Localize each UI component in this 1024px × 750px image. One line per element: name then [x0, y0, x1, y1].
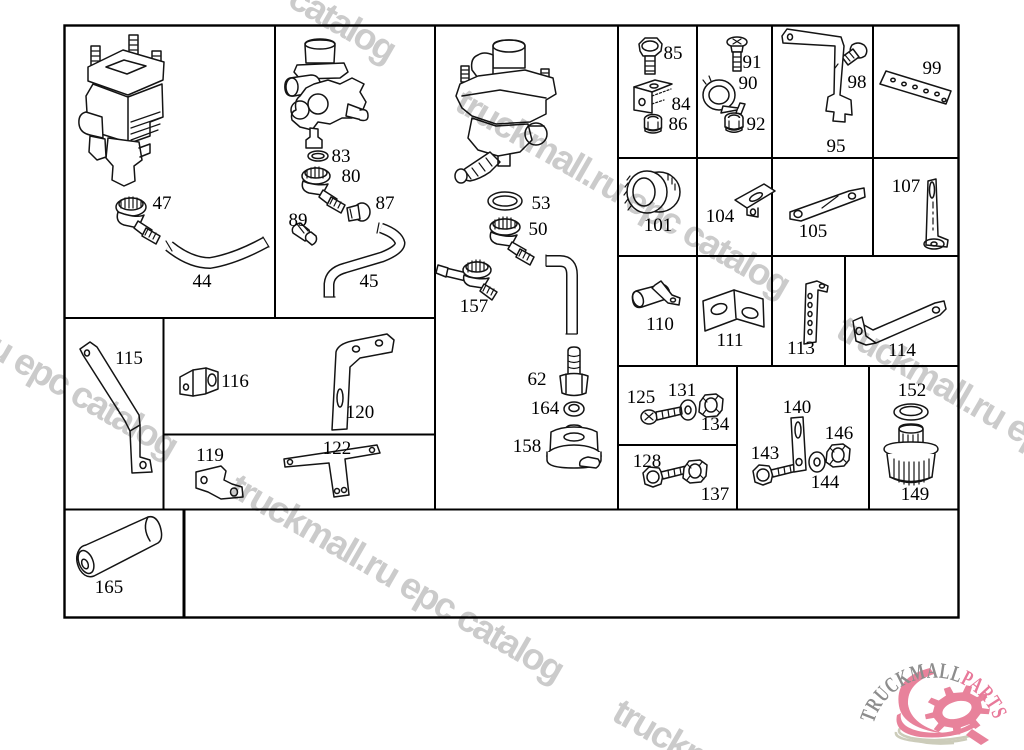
svg-text:89: 89: [289, 210, 308, 231]
svg-text:95: 95: [827, 136, 846, 157]
svg-text:111: 111: [716, 330, 743, 351]
svg-text:128: 128: [633, 451, 662, 472]
svg-text:115: 115: [115, 348, 143, 369]
svg-text:53: 53: [532, 193, 551, 214]
svg-text:165: 165: [95, 577, 124, 598]
svg-text:144: 144: [811, 472, 840, 493]
svg-text:84: 84: [672, 94, 692, 115]
svg-text:122: 122: [323, 438, 352, 459]
svg-text:158: 158: [513, 436, 542, 457]
svg-text:86: 86: [669, 114, 688, 135]
svg-text:44: 44: [193, 271, 213, 292]
svg-text:50: 50: [529, 219, 548, 240]
svg-text:80: 80: [342, 166, 361, 187]
svg-text:105: 105: [799, 221, 828, 242]
svg-text:85: 85: [664, 43, 683, 64]
svg-text:99: 99: [923, 58, 942, 79]
svg-text:149: 149: [901, 484, 930, 505]
svg-text:137: 137: [701, 484, 730, 505]
svg-text:92: 92: [747, 114, 766, 135]
svg-text:125: 125: [627, 387, 656, 408]
svg-text:116: 116: [221, 371, 249, 392]
svg-text:45: 45: [360, 271, 379, 292]
svg-text:146: 146: [825, 423, 854, 444]
svg-text:131: 131: [668, 380, 697, 401]
svg-text:140: 140: [783, 397, 812, 418]
svg-text:134: 134: [701, 414, 730, 435]
svg-text:120: 120: [346, 402, 375, 423]
svg-text:91: 91: [743, 52, 762, 73]
svg-text:87: 87: [376, 193, 395, 214]
svg-text:143: 143: [751, 443, 780, 464]
svg-text:107: 107: [892, 176, 921, 197]
svg-text:90: 90: [739, 73, 758, 94]
svg-text:98: 98: [848, 72, 867, 93]
svg-text:157: 157: [460, 296, 489, 317]
svg-text:113: 113: [787, 338, 815, 359]
svg-text:62: 62: [528, 369, 547, 390]
svg-text:164: 164: [531, 398, 560, 419]
svg-text:110: 110: [646, 314, 674, 335]
svg-text:47: 47: [153, 193, 172, 214]
svg-text:83: 83: [332, 146, 351, 167]
svg-text:119: 119: [196, 445, 224, 466]
